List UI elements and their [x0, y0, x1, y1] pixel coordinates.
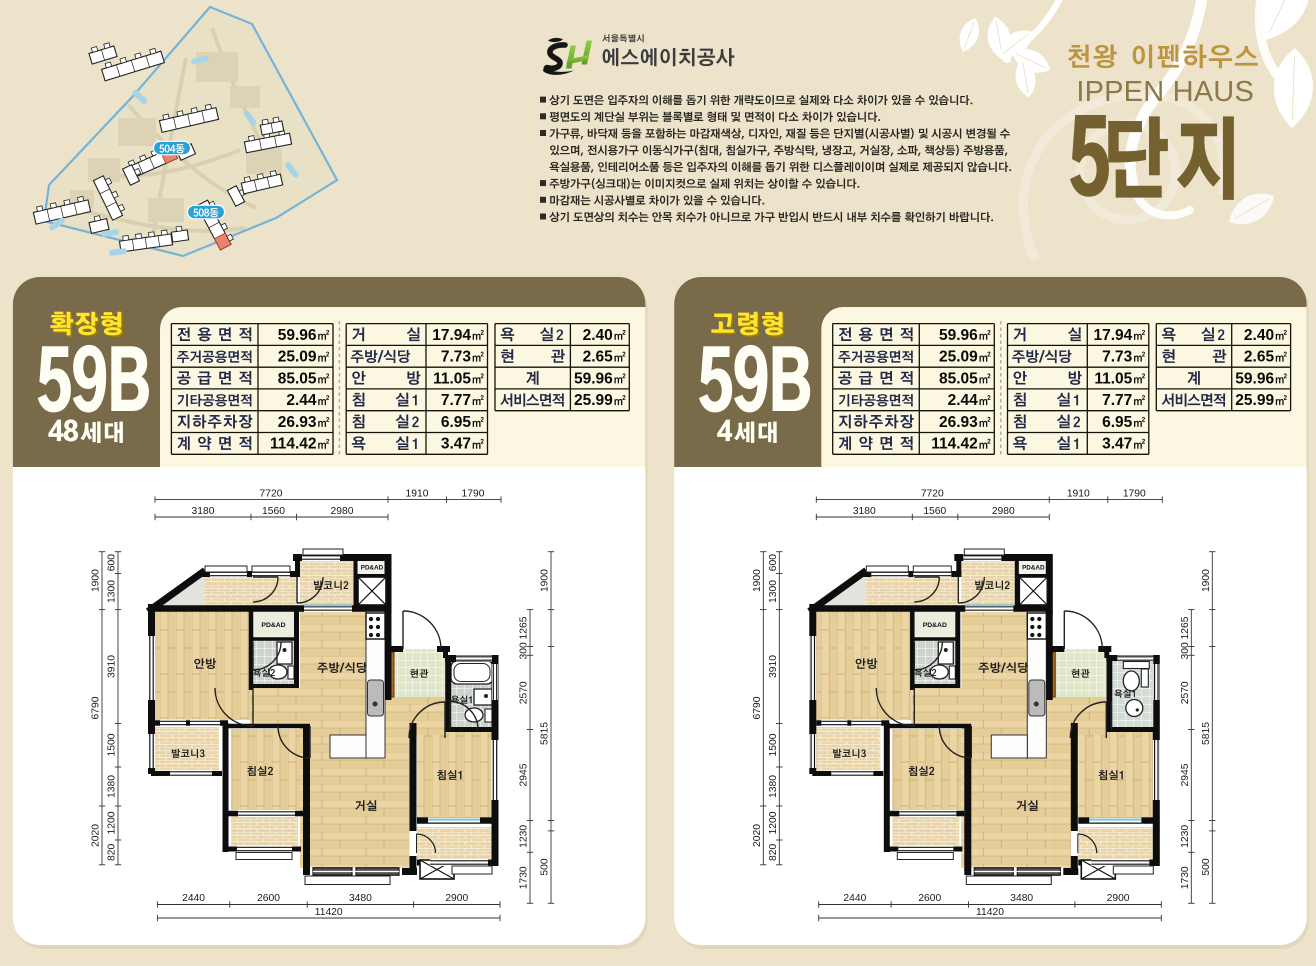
- svg-text:7.77: 7.77: [441, 392, 471, 409]
- svg-text:1900: 1900: [91, 569, 102, 592]
- svg-text:6.95: 6.95: [441, 414, 472, 431]
- svg-text:1200: 1200: [107, 811, 118, 834]
- svg-text:2900: 2900: [445, 893, 468, 904]
- svg-text:1500: 1500: [107, 733, 118, 756]
- svg-text:2600: 2600: [257, 893, 280, 904]
- svg-text:7720: 7720: [260, 488, 283, 499]
- svg-text:2980: 2980: [331, 506, 354, 517]
- svg-text:2570: 2570: [519, 681, 530, 704]
- svg-text:17.94: 17.94: [432, 327, 471, 344]
- svg-text:500: 500: [540, 858, 551, 875]
- svg-text:5815: 5815: [540, 722, 551, 745]
- svg-text:7.73: 7.73: [441, 349, 472, 366]
- svg-text:1560: 1560: [262, 506, 285, 517]
- svg-text:2020: 2020: [91, 824, 102, 847]
- svg-text:1900: 1900: [540, 569, 551, 592]
- svg-text:300: 300: [519, 642, 530, 659]
- svg-text:1910: 1910: [406, 488, 429, 499]
- svg-text:2.65: 2.65: [583, 349, 614, 366]
- svg-text:25.09: 25.09: [278, 349, 317, 366]
- svg-text:1265: 1265: [519, 616, 530, 639]
- svg-text:3.47: 3.47: [441, 436, 471, 453]
- svg-text:PD&AD: PD&AD: [361, 565, 384, 572]
- svg-text:2.44: 2.44: [286, 392, 317, 409]
- svg-text:820: 820: [107, 844, 118, 861]
- svg-text:IPPEN HAUS: IPPEN HAUS: [1076, 76, 1254, 108]
- svg-text:85.05: 85.05: [278, 370, 317, 387]
- svg-text:59.96: 59.96: [278, 327, 317, 344]
- svg-text:1230: 1230: [519, 825, 530, 848]
- svg-text:26.93: 26.93: [278, 414, 317, 431]
- svg-text:114.42: 114.42: [270, 436, 317, 453]
- svg-text:3910: 3910: [107, 655, 118, 678]
- svg-text:3180: 3180: [192, 506, 215, 517]
- svg-text:11420: 11420: [315, 907, 343, 918]
- svg-text:25.99: 25.99: [574, 392, 613, 409]
- svg-text:6790: 6790: [91, 696, 102, 719]
- svg-text:11.05: 11.05: [433, 370, 471, 387]
- svg-text:1790: 1790: [462, 488, 485, 499]
- svg-text:1730: 1730: [519, 866, 530, 889]
- svg-text:2945: 2945: [519, 763, 530, 786]
- svg-text:600: 600: [107, 554, 118, 571]
- svg-text:2440: 2440: [182, 893, 205, 904]
- svg-text:1300: 1300: [107, 580, 118, 603]
- svg-text:PD&AD: PD&AD: [261, 622, 285, 629]
- svg-text:1380: 1380: [107, 775, 118, 798]
- svg-text:2.40: 2.40: [583, 327, 613, 344]
- svg-text:3480: 3480: [349, 893, 372, 904]
- svg-text:59.96: 59.96: [574, 370, 613, 387]
